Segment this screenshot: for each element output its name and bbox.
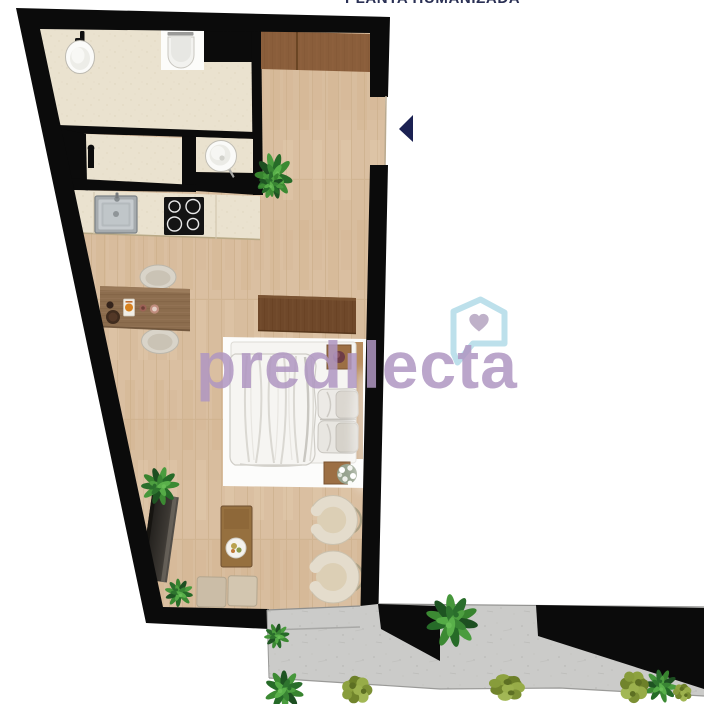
svg-text:predılecta: predılecta: [196, 328, 518, 402]
svg-text:PLANTA HUMANIZADA: PLANTA HUMANIZADA: [345, 0, 520, 7]
